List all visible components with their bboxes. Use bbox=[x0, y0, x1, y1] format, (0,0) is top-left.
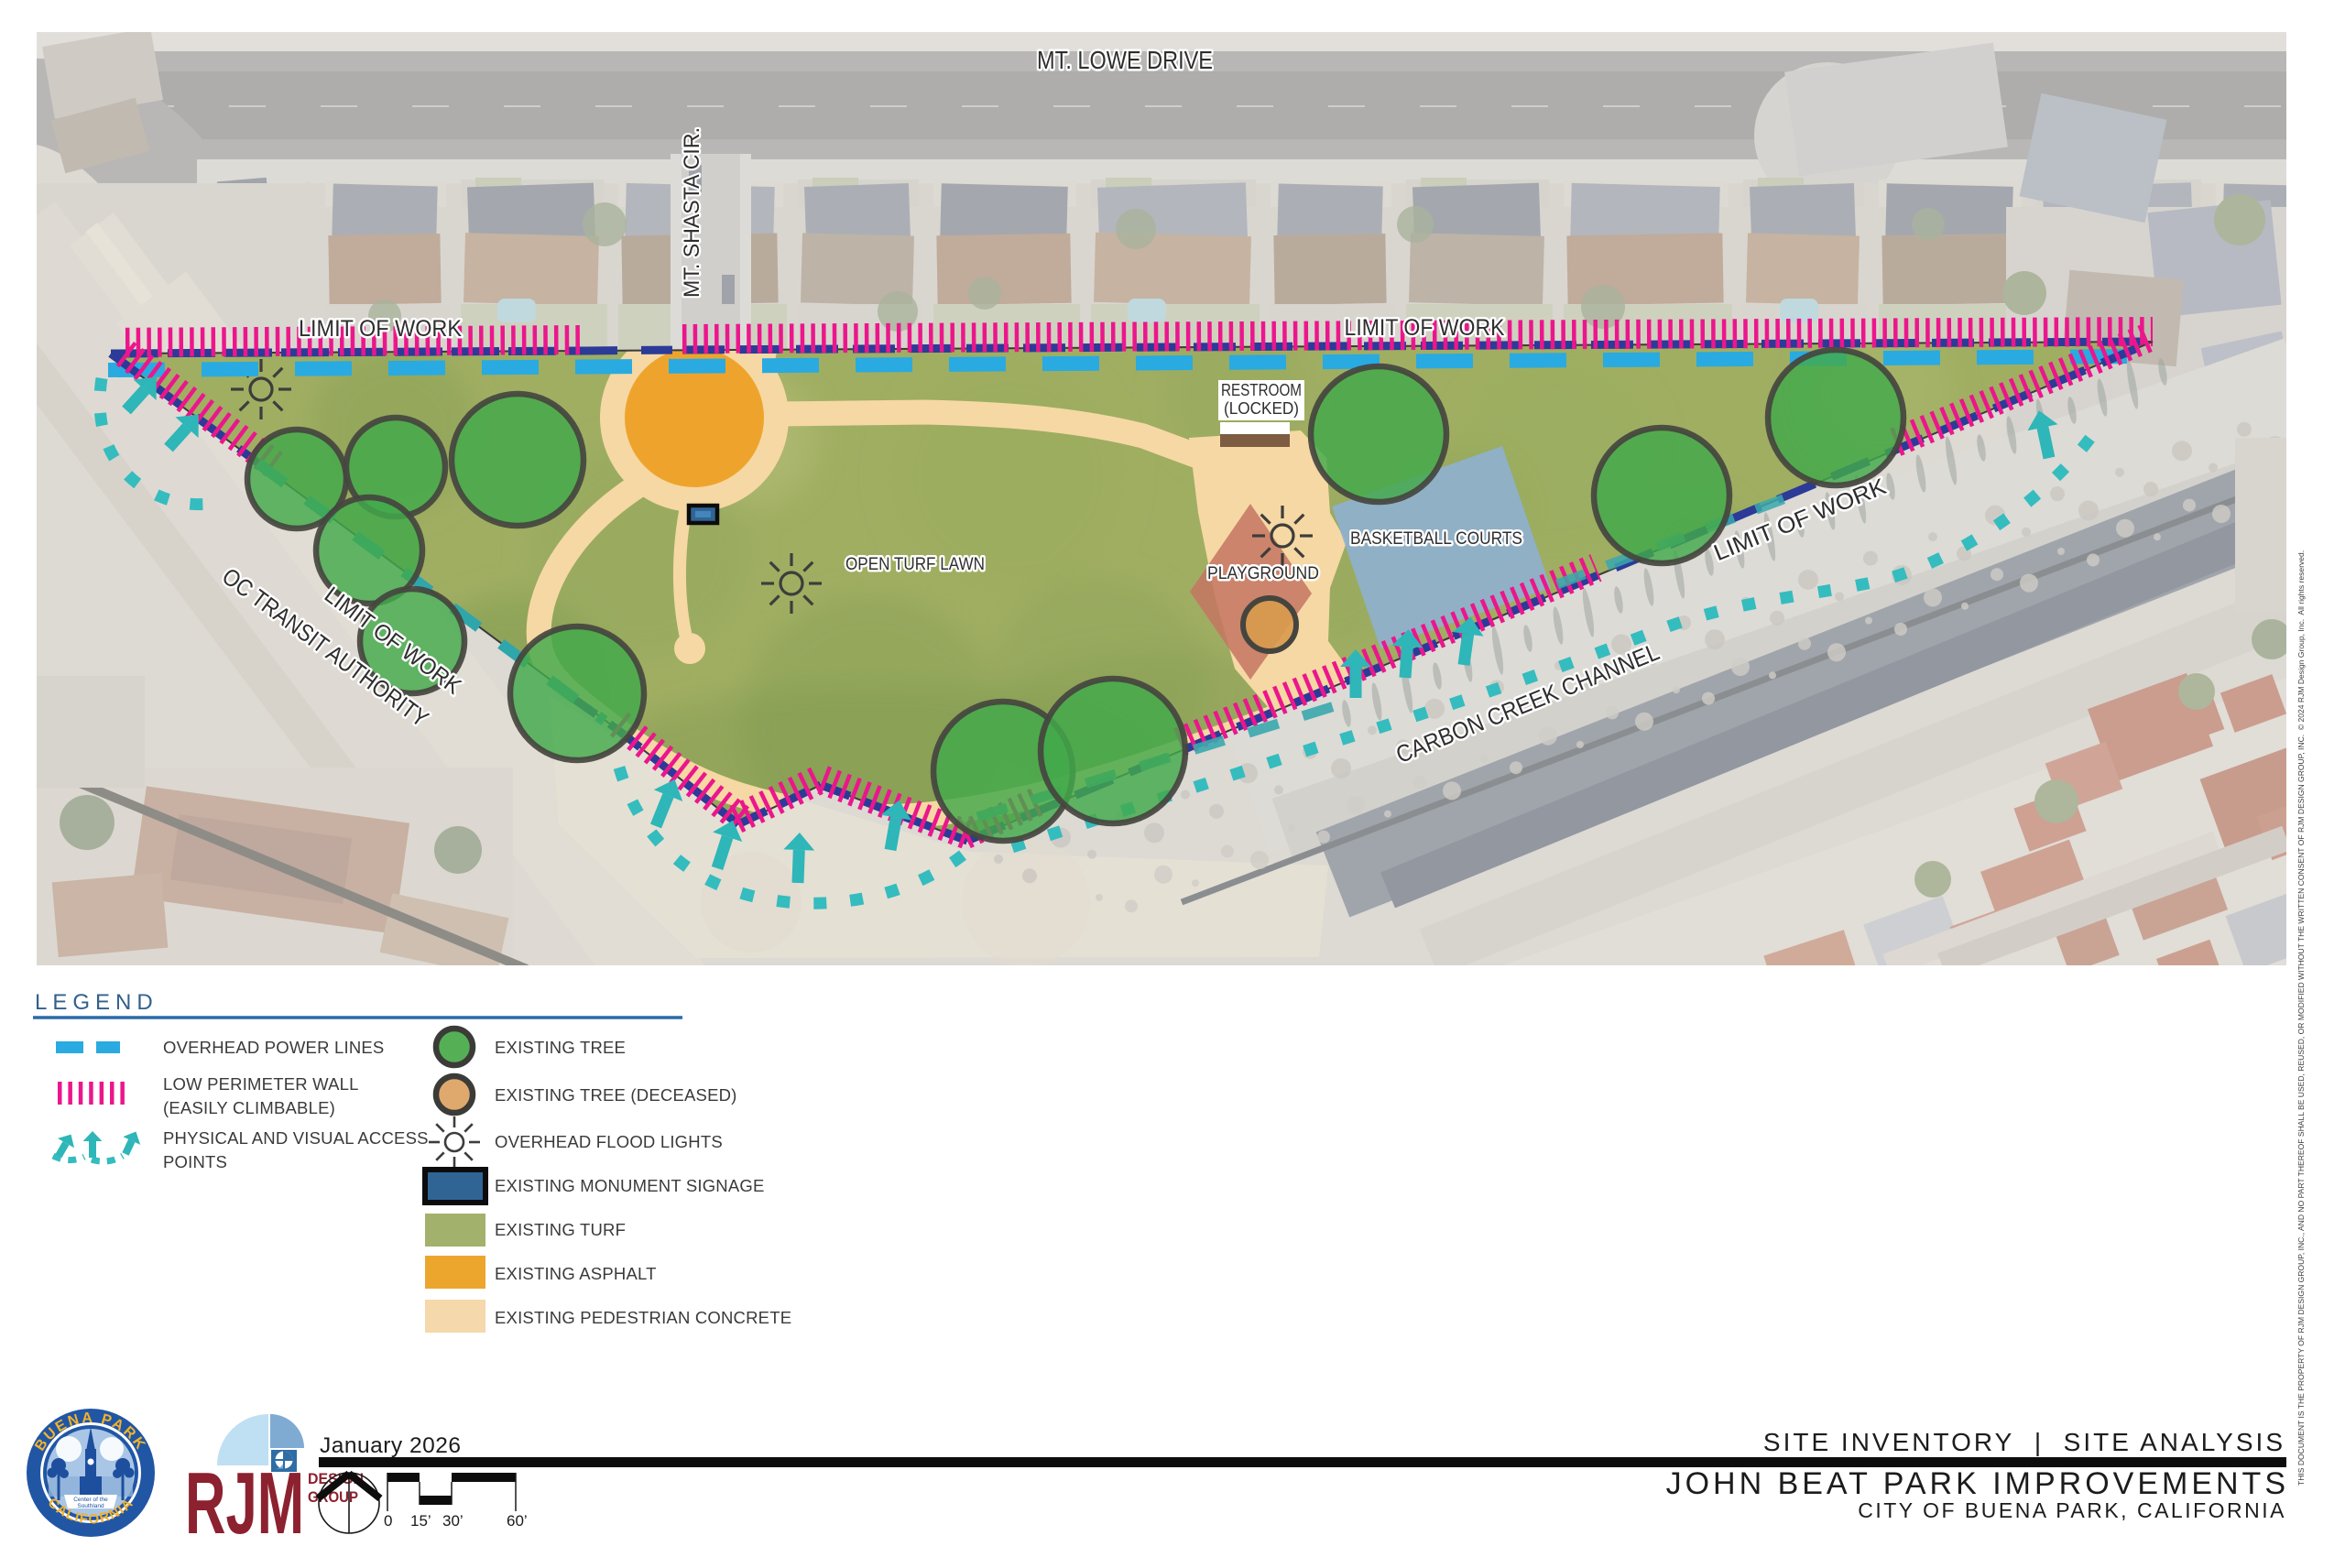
svg-text:EXISTING TREE: EXISTING TREE bbox=[495, 1038, 626, 1057]
svg-text:PLAYGROUND: PLAYGROUND bbox=[1207, 564, 1319, 583]
svg-text:January 2026: January 2026 bbox=[320, 1433, 461, 1458]
svg-text:EXISTING PEDESTRIAN CONCRETE: EXISTING PEDESTRIAN CONCRETE bbox=[495, 1308, 791, 1327]
svg-text:Southland: Southland bbox=[77, 1503, 104, 1509]
svg-text:SITE INVENTORY | SITE ANALYS: SITE INVENTORY | SITE ANALYSIS bbox=[1763, 1428, 2285, 1456]
svg-text:LOW PERIMETER WALL: LOW PERIMETER WALL bbox=[163, 1074, 359, 1094]
svg-text:THIS DOCUMENT IS THE PROPERTY: THIS DOCUMENT IS THE PROPERTY OF RJM DES… bbox=[2296, 550, 2306, 1486]
svg-text:EXISTING ASPHALT: EXISTING ASPHALT bbox=[495, 1264, 657, 1283]
svg-text:15’: 15’ bbox=[410, 1512, 431, 1530]
svg-text:0: 0 bbox=[384, 1512, 392, 1530]
svg-text:LEGEND: LEGEND bbox=[35, 990, 158, 1015]
svg-text:OVERHEAD FLOOD LIGHTS: OVERHEAD FLOOD LIGHTS bbox=[495, 1132, 723, 1151]
svg-text:BASKETBALL COURTS: BASKETBALL COURTS bbox=[1350, 529, 1522, 549]
svg-text:(EASILY CLIMBABLE): (EASILY CLIMBABLE) bbox=[163, 1098, 335, 1117]
svg-text:OPEN TURF LAWN: OPEN TURF LAWN bbox=[845, 555, 985, 574]
svg-text:60’: 60’ bbox=[507, 1512, 528, 1530]
svg-text:30’: 30’ bbox=[442, 1512, 464, 1530]
svg-text:POINTS: POINTS bbox=[163, 1152, 227, 1171]
svg-text:RJM: RJM bbox=[185, 1454, 304, 1552]
svg-text:JOHN BEAT PARK IMPROVEMENTS: JOHN BEAT PARK IMPROVEMENTS bbox=[1666, 1466, 2289, 1501]
svg-text:LIMIT OF WORK: LIMIT OF WORK bbox=[299, 316, 462, 342]
svg-text:(LOCKED): (LOCKED) bbox=[1224, 399, 1299, 418]
svg-text:OVERHEAD POWER LINES: OVERHEAD POWER LINES bbox=[163, 1038, 384, 1057]
svg-text:EXISTING MONUMENT SIGNAGE: EXISTING MONUMENT SIGNAGE bbox=[495, 1176, 765, 1195]
svg-text:MT. LOWE DRIVE: MT. LOWE DRIVE bbox=[1037, 46, 1213, 74]
svg-text:CITY OF BUENA PARK, CALIFORNIA: CITY OF BUENA PARK, CALIFORNIA bbox=[1858, 1498, 2286, 1522]
svg-text:PHYSICAL AND VISUAL ACCESS: PHYSICAL AND VISUAL ACCESS bbox=[163, 1128, 429, 1148]
svg-text:MT. SHASTA CIR.: MT. SHASTA CIR. bbox=[680, 127, 704, 298]
svg-text:RESTROOM: RESTROOM bbox=[1221, 381, 1302, 399]
svg-text:EXISTING TURF: EXISTING TURF bbox=[495, 1220, 626, 1239]
svg-text:LIMIT OF WORK: LIMIT OF WORK bbox=[1345, 315, 1505, 341]
svg-text:Center of the: Center of the bbox=[73, 1497, 108, 1503]
svg-text:EXISTING TREE (DECEASED): EXISTING TREE (DECEASED) bbox=[495, 1085, 737, 1105]
